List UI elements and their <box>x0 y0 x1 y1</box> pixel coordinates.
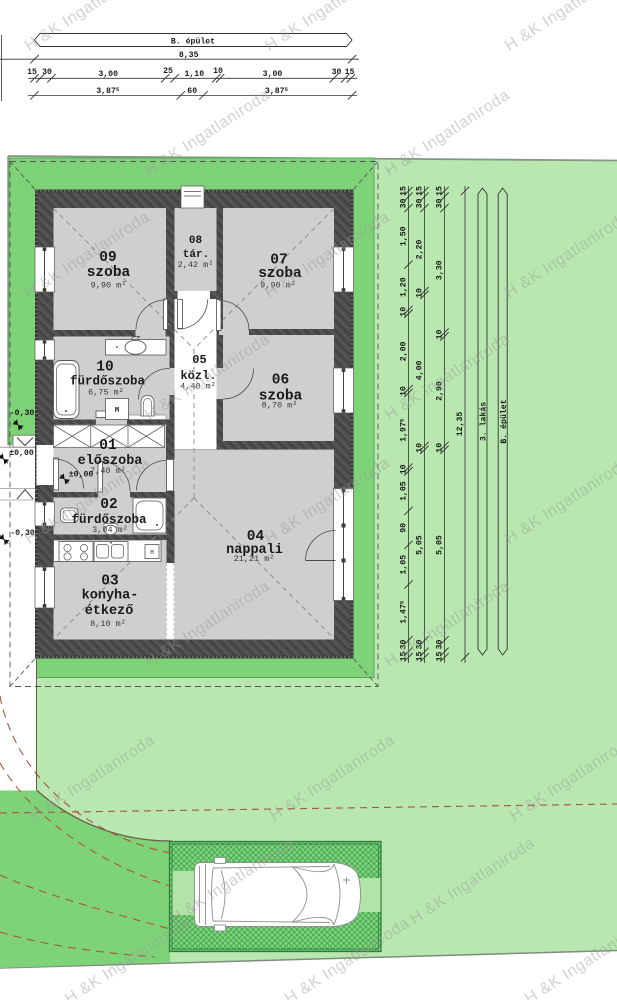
svg-text:10: 10 <box>96 360 113 376</box>
svg-text:fürdőszoba: fürdőszoba <box>70 375 146 389</box>
svg-text:6,75 m²: 6,75 m² <box>88 388 124 398</box>
svg-text:2,42 m²: 2,42 m² <box>178 260 214 270</box>
svg-text:10: 10 <box>435 330 444 340</box>
svg-text:5,05: 5,05 <box>435 535 444 555</box>
svg-text:06: 06 <box>272 373 289 389</box>
svg-text:±0,00: ±0,00 <box>9 449 34 458</box>
svg-text:08: 08 <box>189 235 203 247</box>
svg-text:30: 30 <box>332 68 342 77</box>
svg-text:9,90 m²: 9,90 m² <box>91 281 127 291</box>
svg-text:5,05: 5,05 <box>415 535 424 555</box>
svg-text:-0,30: -0,30 <box>10 409 35 418</box>
svg-text:1,50: 1,50 <box>399 226 408 246</box>
svg-text:03: 03 <box>101 574 118 590</box>
svg-text:3,30: 3,30 <box>435 260 444 280</box>
svg-text:30: 30 <box>399 199 408 209</box>
svg-text:90: 90 <box>399 523 408 533</box>
svg-text:25: 25 <box>163 67 173 76</box>
svg-text:3,04 m²: 3,04 m² <box>92 525 128 535</box>
svg-text:M: M <box>115 407 119 415</box>
svg-text:konyha-: konyha- <box>82 589 139 604</box>
svg-text:30: 30 <box>435 199 444 209</box>
svg-text:4,00: 4,00 <box>415 360 424 380</box>
svg-text:10: 10 <box>399 307 408 317</box>
svg-text:10: 10 <box>435 443 444 453</box>
svg-text:15: 15 <box>415 186 424 196</box>
svg-text:10: 10 <box>399 464 408 474</box>
svg-text:05: 05 <box>192 353 206 367</box>
svg-text:8,70 m²: 8,70 m² <box>262 401 298 411</box>
svg-text:1,10: 1,10 <box>184 70 204 79</box>
svg-text:15: 15 <box>435 652 444 662</box>
svg-text:10: 10 <box>415 288 424 298</box>
svg-text:H: H <box>150 549 154 556</box>
svg-text:2,00: 2,00 <box>399 341 408 361</box>
svg-text:B. épület: B. épület <box>499 399 509 443</box>
svg-text:10: 10 <box>213 67 223 76</box>
svg-text:szoba: szoba <box>87 265 131 281</box>
svg-text:±0,00: ±0,00 <box>69 471 94 480</box>
svg-text:3,00: 3,00 <box>263 70 283 79</box>
svg-text:15: 15 <box>399 186 408 196</box>
svg-text:21,21 m²: 21,21 m² <box>234 554 275 564</box>
svg-text:30: 30 <box>42 68 52 77</box>
svg-text:15: 15 <box>345 68 355 77</box>
svg-text:60: 60 <box>187 87 197 96</box>
svg-text:10: 10 <box>415 443 424 453</box>
svg-text:15: 15 <box>435 186 444 196</box>
svg-text:3. lakás: 3. lakás <box>479 402 489 441</box>
svg-text:1,05: 1,05 <box>399 481 408 501</box>
svg-text:B. épület: B. épület <box>171 37 215 47</box>
svg-text:3,00: 3,00 <box>98 70 118 79</box>
svg-text:01: 01 <box>99 438 117 454</box>
svg-text:étkező: étkező <box>85 604 134 619</box>
svg-text:1,05: 1,05 <box>399 555 408 575</box>
svg-text:1,20: 1,20 <box>399 277 408 297</box>
svg-text:8,10 m²: 8,10 m² <box>90 619 126 629</box>
svg-text:12,35: 12,35 <box>456 412 465 437</box>
svg-text:30: 30 <box>415 199 424 209</box>
svg-text:2,20: 2,20 <box>415 240 424 260</box>
svg-text:15: 15 <box>27 68 37 77</box>
svg-text:8,35: 8,35 <box>179 51 199 60</box>
